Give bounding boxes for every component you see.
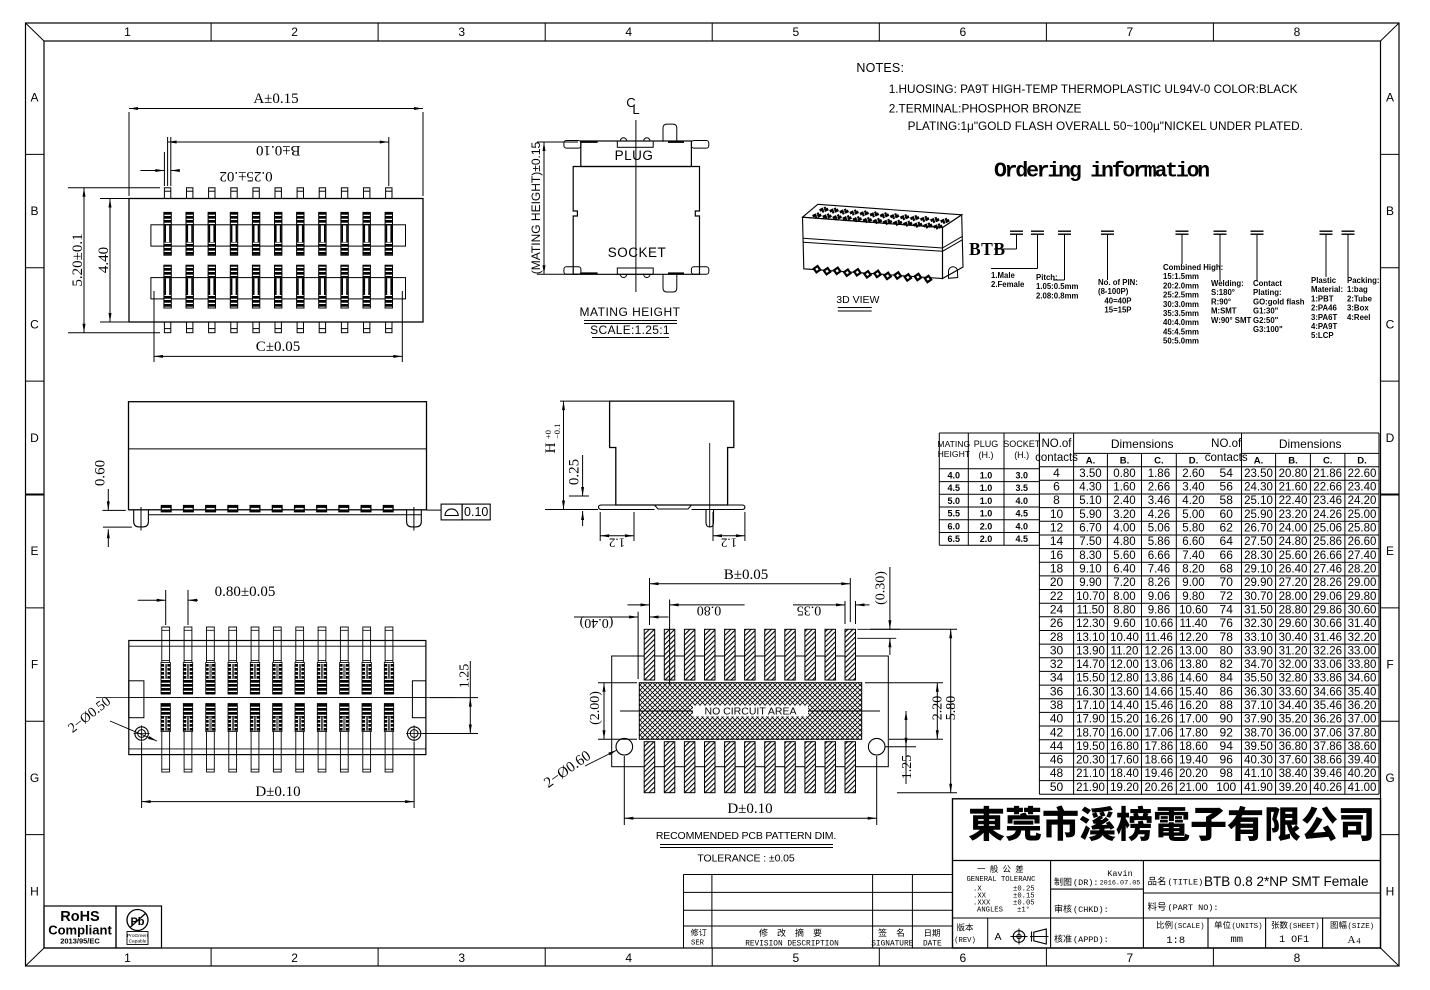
- svg-text:±1°: ±1°: [1017, 906, 1030, 915]
- svg-text:A±0.15: A±0.15: [253, 91, 298, 107]
- svg-text:44: 44: [1050, 739, 1064, 753]
- svg-text:B: B: [1386, 204, 1394, 218]
- svg-text:12.80: 12.80: [1110, 673, 1139, 685]
- svg-text:7: 7: [1127, 25, 1134, 39]
- svg-text:62: 62: [1220, 521, 1234, 535]
- svg-text:1.25: 1.25: [458, 664, 473, 689]
- svg-text:(MATING HEIGHT)±0.15: (MATING HEIGHT)±0.15: [529, 141, 543, 274]
- svg-text:16.26: 16.26: [1145, 714, 1174, 726]
- svg-text:16.80: 16.80: [1110, 741, 1139, 753]
- svg-text:13.10: 13.10: [1076, 632, 1105, 644]
- svg-text:16.30: 16.30: [1076, 686, 1105, 698]
- svg-text:contacts: contacts: [1035, 452, 1078, 464]
- svg-text:17.06: 17.06: [1145, 727, 1174, 739]
- svg-text:38: 38: [1050, 698, 1064, 712]
- svg-text:28.30: 28.30: [1244, 550, 1273, 562]
- svg-text:26.66: 26.66: [1313, 550, 1342, 562]
- svg-text:39.20: 39.20: [1279, 782, 1308, 794]
- svg-text:4: 4: [625, 25, 632, 39]
- svg-text:(8-100P): (8-100P): [1098, 287, 1129, 296]
- svg-text:14.66: 14.66: [1145, 686, 1174, 698]
- svg-text:78: 78: [1220, 630, 1234, 644]
- svg-text:1.0: 1.0: [980, 509, 993, 519]
- svg-text:(H.): (H.): [979, 450, 994, 460]
- svg-text:PLATING:1μ"GOLD FLASH OVERALL: PLATING:1μ"GOLD FLASH OVERALL 50~100μ"NI…: [908, 119, 1303, 133]
- svg-text:50:5.0mm: 50:5.0mm: [1163, 337, 1199, 346]
- svg-text:7.50: 7.50: [1079, 536, 1101, 548]
- svg-text:37.10: 37.10: [1244, 700, 1273, 712]
- svg-text:H: H: [543, 442, 559, 453]
- svg-text:B.: B.: [1288, 456, 1298, 467]
- svg-text:39.40: 39.40: [1348, 755, 1377, 767]
- svg-text:Material:: Material:: [1311, 285, 1343, 294]
- svg-text:24.00: 24.00: [1279, 523, 1308, 535]
- svg-text:18.70: 18.70: [1076, 727, 1105, 739]
- svg-text:10.66: 10.66: [1145, 618, 1174, 630]
- svg-text:6.70: 6.70: [1079, 523, 1101, 535]
- svg-text:18.60: 18.60: [1179, 741, 1208, 753]
- svg-text:5.86: 5.86: [1148, 536, 1170, 548]
- svg-text:8.00: 8.00: [1113, 591, 1135, 603]
- svg-text:No. of PIN:: No. of PIN:: [1098, 278, 1138, 287]
- svg-text:7.40: 7.40: [1182, 550, 1204, 562]
- svg-text:38.70: 38.70: [1244, 727, 1273, 739]
- svg-text:B: B: [30, 204, 38, 218]
- svg-text:35.40: 35.40: [1348, 686, 1377, 698]
- svg-text:4.00: 4.00: [1113, 523, 1135, 535]
- svg-text:66: 66: [1220, 548, 1234, 562]
- svg-text:9.60: 9.60: [1113, 618, 1135, 630]
- svg-text:28.20: 28.20: [1348, 564, 1377, 576]
- svg-text:28.00: 28.00: [1279, 591, 1308, 603]
- svg-text:1.2: 1.2: [721, 536, 737, 551]
- svg-text:68: 68: [1220, 562, 1234, 576]
- svg-text:15.20: 15.20: [1110, 714, 1139, 726]
- svg-text:12.00: 12.00: [1110, 659, 1139, 671]
- svg-text:31.40: 31.40: [1348, 618, 1377, 630]
- svg-text:1.Male: 1.Male: [991, 271, 1015, 280]
- svg-text:16: 16: [1050, 548, 1064, 562]
- svg-text:D.: D.: [1357, 456, 1367, 467]
- svg-text:21.00: 21.00: [1179, 782, 1208, 794]
- svg-text:18.40: 18.40: [1110, 768, 1139, 780]
- svg-text:37.60: 37.60: [1279, 755, 1308, 767]
- svg-text:0.25: 0.25: [567, 459, 583, 485]
- svg-text:D.: D.: [1189, 456, 1199, 467]
- svg-text:ANGLES: ANGLES: [977, 907, 1003, 915]
- svg-text:H: H: [1386, 884, 1395, 898]
- svg-text:SOCKET: SOCKET: [608, 245, 667, 260]
- svg-text:(APPD):: (APPD):: [1073, 935, 1109, 945]
- svg-text:RECOMMENDED PCB PATTERN DIM.: RECOMMENDED PCB PATTERN DIM.: [656, 830, 836, 842]
- svg-text:72: 72: [1220, 589, 1234, 603]
- svg-text:D±0.10: D±0.10: [255, 784, 300, 800]
- svg-text:1.0: 1.0: [980, 483, 993, 493]
- svg-text:37.90: 37.90: [1244, 714, 1273, 726]
- svg-text:82: 82: [1220, 657, 1234, 671]
- svg-text:11.46: 11.46: [1145, 632, 1173, 644]
- svg-text:16.00: 16.00: [1110, 727, 1139, 739]
- svg-text:26.70: 26.70: [1244, 523, 1273, 535]
- svg-text:3.0: 3.0: [1015, 470, 1028, 480]
- svg-text:(SIZE): (SIZE): [1348, 923, 1375, 931]
- svg-text:C.: C.: [1323, 456, 1333, 467]
- svg-text:A.: A.: [1254, 456, 1264, 467]
- svg-text:41.90: 41.90: [1244, 782, 1273, 794]
- svg-text:5.06: 5.06: [1148, 523, 1170, 535]
- svg-text:28: 28: [1050, 630, 1064, 644]
- svg-text:1 OF1: 1 OF1: [1279, 935, 1309, 946]
- svg-text:2: 2: [291, 951, 298, 965]
- svg-text:24: 24: [1050, 603, 1064, 617]
- svg-text:34.60: 34.60: [1348, 673, 1377, 685]
- svg-text:90: 90: [1220, 712, 1234, 726]
- svg-text:27.40: 27.40: [1348, 550, 1377, 562]
- svg-text:19.46: 19.46: [1145, 768, 1174, 780]
- svg-text:31.46: 31.46: [1313, 632, 1342, 644]
- svg-text:3: 3: [458, 25, 465, 39]
- svg-text:39.50: 39.50: [1244, 741, 1273, 753]
- svg-text:4: 4: [1053, 466, 1060, 480]
- svg-text:0.25±.02: 0.25±.02: [219, 168, 272, 184]
- svg-text:Combined High:: Combined High:: [1163, 263, 1223, 272]
- svg-text:−0.1: −0.1: [552, 424, 562, 439]
- svg-text:33.10: 33.10: [1244, 632, 1273, 644]
- svg-text:(TITLE):: (TITLE):: [1168, 878, 1209, 888]
- svg-text:Welding:: Welding:: [1211, 279, 1244, 288]
- svg-text:41.00: 41.00: [1348, 782, 1377, 794]
- svg-text:1:PBT: 1:PBT: [1311, 294, 1334, 303]
- svg-text:mm: mm: [1230, 934, 1243, 946]
- svg-text:24.26: 24.26: [1313, 509, 1342, 521]
- svg-text:C: C: [1386, 317, 1395, 331]
- svg-text:BTB 0.8 2*NP SMT Female: BTB 0.8 2*NP SMT Female: [1204, 874, 1369, 889]
- svg-text:30.66: 30.66: [1313, 618, 1342, 630]
- svg-text:5.80: 5.80: [944, 696, 959, 721]
- svg-text:9.90: 9.90: [1079, 577, 1101, 589]
- svg-text:4.5: 4.5: [1015, 534, 1028, 544]
- svg-text:(SCALE): (SCALE): [1174, 923, 1205, 931]
- svg-text:M:SMT: M:SMT: [1211, 307, 1237, 316]
- svg-text:10.60: 10.60: [1179, 605, 1208, 617]
- svg-text:14.60: 14.60: [1179, 673, 1208, 685]
- svg-text:(0.40): (0.40): [579, 615, 613, 630]
- svg-text:33.06: 33.06: [1313, 659, 1342, 671]
- svg-text:25.10: 25.10: [1244, 495, 1273, 507]
- svg-text:Kavin: Kavin: [1107, 869, 1133, 879]
- svg-text:13.00: 13.00: [1179, 645, 1208, 657]
- svg-text:4: 4: [1357, 937, 1361, 946]
- svg-text:25.06: 25.06: [1313, 523, 1342, 535]
- svg-text:5.00: 5.00: [1182, 509, 1204, 521]
- svg-text:L: L: [632, 102, 639, 117]
- svg-text:(H.): (H.): [1014, 450, 1029, 460]
- svg-text:1.05:0.5mm: 1.05:0.5mm: [1036, 282, 1079, 291]
- svg-text:24.30: 24.30: [1244, 482, 1273, 494]
- svg-text:8.26: 8.26: [1148, 577, 1170, 589]
- svg-text:22: 22: [1050, 589, 1064, 603]
- svg-text:1:8: 1:8: [1166, 935, 1185, 947]
- svg-text:2−Ø0.50: 2−Ø0.50: [66, 694, 114, 736]
- svg-text:6.5: 6.5: [948, 534, 961, 544]
- svg-text:40.20: 40.20: [1348, 768, 1377, 780]
- svg-text:8.80: 8.80: [1113, 605, 1135, 617]
- svg-text:11.50: 11.50: [1077, 605, 1105, 617]
- svg-text:2:Tube: 2:Tube: [1347, 294, 1373, 303]
- svg-text:19.20: 19.20: [1110, 782, 1139, 794]
- svg-text:48: 48: [1050, 766, 1064, 780]
- svg-text:(PART NO):: (PART NO):: [1168, 903, 1219, 913]
- svg-text:3D: 3D: [836, 294, 850, 306]
- svg-text:45:4.5mm: 45:4.5mm: [1163, 327, 1199, 336]
- svg-text:9.00: 9.00: [1182, 577, 1204, 589]
- svg-text:12: 12: [1050, 521, 1064, 535]
- svg-text:17.86: 17.86: [1145, 741, 1174, 753]
- svg-text:2.08:0.8mm: 2.08:0.8mm: [1036, 291, 1079, 300]
- svg-text:17.60: 17.60: [1110, 755, 1139, 767]
- svg-text:6: 6: [959, 25, 966, 39]
- svg-text:25.60: 25.60: [1279, 550, 1308, 562]
- svg-text:27.20: 27.20: [1279, 577, 1308, 589]
- svg-text:4.26: 4.26: [1148, 509, 1170, 521]
- svg-text:MATING: MATING: [937, 439, 970, 449]
- svg-text:84: 84: [1220, 671, 1234, 685]
- svg-text:2.TERMINAL:PHOSPHOR BRONZE: 2.TERMINAL:PHOSPHOR BRONZE: [889, 102, 1082, 116]
- svg-text:22.66: 22.66: [1313, 482, 1342, 494]
- svg-text:0.80: 0.80: [1113, 468, 1135, 480]
- svg-text:74: 74: [1220, 603, 1234, 617]
- svg-text:(CHKD):: (CHKD):: [1073, 905, 1109, 915]
- svg-text:38.60: 38.60: [1348, 741, 1377, 753]
- svg-text:92: 92: [1220, 725, 1234, 739]
- svg-text:1.86: 1.86: [1148, 468, 1170, 480]
- svg-text:56: 56: [1220, 480, 1234, 494]
- svg-text:12.30: 12.30: [1076, 618, 1105, 630]
- svg-text:14.70: 14.70: [1076, 659, 1105, 671]
- svg-text:86: 86: [1220, 684, 1234, 698]
- svg-text:24.80: 24.80: [1279, 536, 1308, 548]
- svg-text:28.80: 28.80: [1279, 605, 1308, 617]
- svg-text:9.06: 9.06: [1148, 591, 1170, 603]
- svg-text:12.20: 12.20: [1179, 632, 1208, 644]
- svg-text:50: 50: [1050, 780, 1064, 794]
- svg-text:27.50: 27.50: [1244, 536, 1273, 548]
- svg-text:31.20: 31.20: [1279, 645, 1308, 657]
- svg-text:F: F: [1386, 658, 1393, 672]
- svg-text:0.60: 0.60: [93, 460, 109, 486]
- svg-text:(2.00): (2.00): [588, 691, 603, 725]
- svg-text:8: 8: [1294, 25, 1301, 39]
- svg-text:9.80: 9.80: [1182, 591, 1204, 603]
- svg-text:SOCKET: SOCKET: [1003, 439, 1041, 449]
- svg-text:40=40P: 40=40P: [1104, 296, 1131, 305]
- svg-text:29.10: 29.10: [1244, 564, 1273, 576]
- svg-text:36.30: 36.30: [1244, 686, 1273, 698]
- svg-text:28.26: 28.26: [1313, 577, 1342, 589]
- svg-text:5: 5: [792, 951, 799, 965]
- svg-text:2:PA46: 2:PA46: [1311, 304, 1338, 313]
- svg-text:34.70: 34.70: [1244, 659, 1273, 671]
- svg-text:C±0.05: C±0.05: [256, 339, 301, 355]
- svg-text:13.06: 13.06: [1145, 659, 1174, 671]
- svg-text:S:180°: S:180°: [1211, 288, 1235, 297]
- svg-text:2.0: 2.0: [980, 534, 993, 544]
- svg-text:Compliant: Compliant: [48, 923, 112, 938]
- svg-text:64: 64: [1220, 534, 1234, 548]
- svg-text:30.40: 30.40: [1279, 632, 1308, 644]
- svg-text:15.40: 15.40: [1179, 686, 1208, 698]
- svg-text:0.35: 0.35: [797, 603, 822, 618]
- svg-text:SER: SER: [691, 940, 705, 948]
- svg-text:58: 58: [1220, 493, 1234, 507]
- svg-text:25:2.5mm: 25:2.5mm: [1163, 291, 1199, 300]
- svg-text:DATE: DATE: [923, 941, 942, 949]
- svg-text:100: 100: [1216, 780, 1236, 794]
- svg-text:6.66: 6.66: [1148, 550, 1170, 562]
- svg-text:18.66: 18.66: [1145, 755, 1174, 767]
- svg-text:E: E: [1386, 544, 1394, 558]
- svg-text:3.46: 3.46: [1148, 495, 1170, 507]
- svg-text:26.40: 26.40: [1279, 564, 1308, 576]
- svg-text:contacts: contacts: [1205, 452, 1248, 464]
- svg-text:Ordering information: Ordering information: [994, 160, 1209, 184]
- svg-text:20.80: 20.80: [1279, 468, 1308, 480]
- svg-text:B.: B.: [1120, 456, 1130, 467]
- svg-text:32.80: 32.80: [1279, 673, 1308, 685]
- svg-text:GENERAL TOLERANC: GENERAL TOLERANC: [966, 876, 1036, 884]
- svg-text:NO.of: NO.of: [1211, 438, 1242, 450]
- svg-text:0.80±0.05: 0.80±0.05: [215, 584, 276, 600]
- svg-text:32.26: 32.26: [1313, 645, 1342, 657]
- svg-text:2016.07.05: 2016.07.05: [1100, 880, 1141, 888]
- svg-text:B±0.10: B±0.10: [256, 142, 301, 158]
- svg-text:3:PA6T: 3:PA6T: [1311, 313, 1338, 322]
- svg-text:33.00: 33.00: [1348, 645, 1377, 657]
- svg-text:40: 40: [1050, 712, 1064, 726]
- svg-text:4.30: 4.30: [1079, 482, 1101, 494]
- svg-text:G: G: [1385, 771, 1394, 785]
- svg-text:29.80: 29.80: [1348, 591, 1377, 603]
- svg-text:38.40: 38.40: [1279, 768, 1308, 780]
- svg-text:F: F: [31, 658, 38, 672]
- svg-text:23.20: 23.20: [1279, 509, 1308, 521]
- svg-text:8.20: 8.20: [1182, 564, 1204, 576]
- svg-text:25.80: 25.80: [1348, 523, 1377, 535]
- svg-text:6.0: 6.0: [948, 521, 961, 531]
- svg-text:30:3.0mm: 30:3.0mm: [1163, 300, 1199, 309]
- svg-text:1: 1: [124, 951, 131, 965]
- svg-text:1:bag: 1:bag: [1347, 285, 1368, 294]
- svg-text:Plating:: Plating:: [1253, 288, 1282, 297]
- svg-text:1.0: 1.0: [980, 470, 993, 480]
- svg-text:Plastic: Plastic: [1311, 276, 1337, 285]
- svg-text:3.40: 3.40: [1182, 482, 1204, 494]
- svg-text:20: 20: [1050, 575, 1064, 589]
- svg-text:A: A: [1386, 91, 1394, 105]
- svg-text:17.80: 17.80: [1179, 727, 1208, 739]
- svg-text:3.5: 3.5: [1015, 483, 1028, 493]
- svg-text:36.26: 36.26: [1313, 714, 1342, 726]
- svg-text:HEIGHT: HEIGHT: [938, 449, 971, 459]
- svg-text:(REV): (REV): [954, 937, 976, 945]
- svg-text:30.60: 30.60: [1348, 605, 1377, 617]
- svg-text:19.50: 19.50: [1076, 741, 1105, 753]
- svg-text:37.06: 37.06: [1313, 727, 1342, 739]
- svg-text:A: A: [1348, 934, 1356, 946]
- svg-text:2: 2: [291, 25, 298, 39]
- svg-text:2013/95/EC: 2013/95/EC: [60, 937, 100, 946]
- svg-text:1: 1: [124, 25, 131, 39]
- svg-text:15.46: 15.46: [1145, 700, 1174, 712]
- svg-text:24.20: 24.20: [1348, 495, 1377, 507]
- svg-text:20:2.0mm: 20:2.0mm: [1163, 281, 1199, 290]
- svg-text:9.10: 9.10: [1079, 564, 1101, 576]
- svg-text:34: 34: [1050, 671, 1064, 685]
- svg-text:80: 80: [1220, 643, 1234, 657]
- svg-text:PLUG: PLUG: [974, 439, 999, 449]
- svg-text:29.06: 29.06: [1313, 591, 1342, 603]
- svg-text:5:LCP: 5:LCP: [1311, 331, 1334, 340]
- svg-text:21.86: 21.86: [1313, 468, 1342, 480]
- svg-text:C: C: [30, 317, 39, 331]
- svg-text:13.86: 13.86: [1145, 673, 1174, 685]
- svg-text:4:Reel: 4:Reel: [1347, 313, 1370, 322]
- svg-text:7.20: 7.20: [1113, 577, 1135, 589]
- svg-text:2.66: 2.66: [1148, 482, 1170, 494]
- svg-text:42: 42: [1050, 725, 1064, 739]
- svg-text:13.60: 13.60: [1110, 686, 1139, 698]
- svg-text:38.66: 38.66: [1313, 755, 1342, 767]
- svg-text:0.10: 0.10: [464, 505, 488, 519]
- svg-text:Pitch:: Pitch:: [1036, 273, 1058, 282]
- svg-text:31.50: 31.50: [1244, 605, 1273, 617]
- svg-text:(0.30): (0.30): [874, 571, 889, 605]
- svg-text:70: 70: [1220, 575, 1234, 589]
- svg-text:16.20: 16.20: [1179, 700, 1208, 712]
- svg-text:35.46: 35.46: [1313, 700, 1342, 712]
- svg-text:6.60: 6.60: [1182, 536, 1204, 548]
- svg-text:21.90: 21.90: [1076, 782, 1105, 794]
- svg-text:1.HUOSING: PA9T HIGH-TEMP T: 1.HUOSING: PA9T HIGH-TEMP THERMOPLASTIC …: [889, 82, 1298, 96]
- svg-text:9.86: 9.86: [1148, 605, 1170, 617]
- svg-text:25.90: 25.90: [1244, 509, 1273, 521]
- svg-text:A.: A.: [1086, 456, 1096, 467]
- svg-text:G3:100": G3:100": [1253, 325, 1283, 334]
- svg-text:2.0: 2.0: [980, 521, 993, 531]
- svg-text:25.00: 25.00: [1348, 509, 1377, 521]
- svg-text:23.46: 23.46: [1313, 495, 1342, 507]
- svg-text:2.40: 2.40: [1113, 495, 1135, 507]
- svg-text:5.10: 5.10: [1079, 495, 1101, 507]
- svg-text:H: H: [30, 884, 39, 898]
- svg-text:NO CIRCUIT AREA: NO CIRCUIT AREA: [705, 706, 797, 718]
- svg-text:12.26: 12.26: [1145, 645, 1174, 657]
- svg-text:NOTES:: NOTES:: [856, 61, 904, 75]
- svg-text:29.00: 29.00: [1348, 577, 1377, 589]
- svg-text:11.20: 11.20: [1111, 645, 1139, 657]
- svg-text:37.00: 37.00: [1348, 714, 1377, 726]
- svg-text:5.80: 5.80: [1182, 523, 1204, 535]
- svg-text:15:1.5mm: 15:1.5mm: [1163, 272, 1199, 281]
- svg-text:10.40: 10.40: [1110, 632, 1139, 644]
- svg-text:SIGNATURE: SIGNATURE: [871, 941, 913, 949]
- svg-text:1.25: 1.25: [900, 755, 915, 780]
- svg-text:G2:50": G2:50": [1253, 316, 1279, 325]
- svg-text:23.50: 23.50: [1244, 468, 1273, 480]
- svg-text:34.40: 34.40: [1279, 700, 1308, 712]
- svg-text:33.60: 33.60: [1279, 686, 1308, 698]
- svg-text:G1:30": G1:30": [1253, 307, 1279, 316]
